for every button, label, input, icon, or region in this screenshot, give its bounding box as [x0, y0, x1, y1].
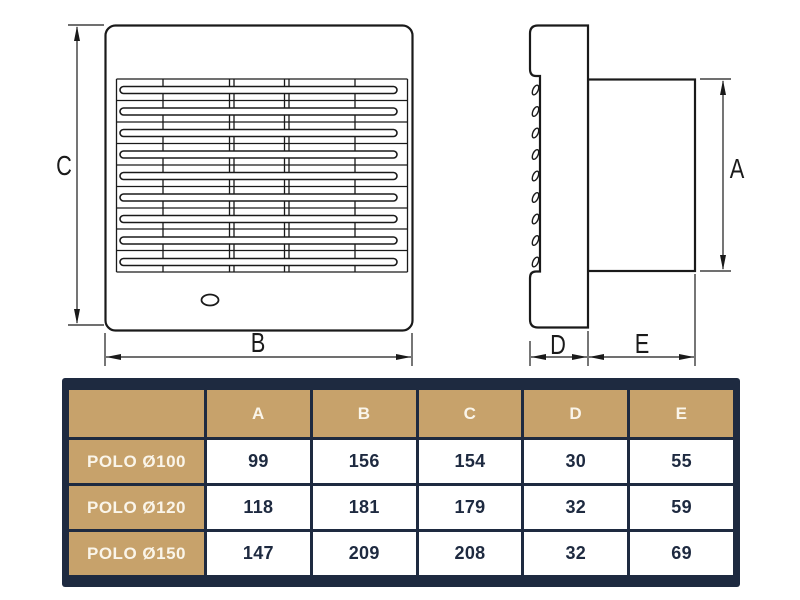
- table-cell: 30: [524, 440, 627, 483]
- column-header-b: B: [313, 390, 416, 437]
- row-header-polo150: POLO Ø150: [69, 532, 204, 575]
- dimension-label-b: B: [251, 327, 266, 358]
- table-cell: 69: [630, 532, 733, 575]
- table-corner-cell: [69, 390, 204, 437]
- table-cell: 99: [207, 440, 310, 483]
- table-cell: 154: [419, 440, 522, 483]
- louver-hooks: [531, 84, 540, 268]
- row-header-polo120: POLO Ø120: [69, 486, 204, 529]
- front-view: [106, 26, 413, 331]
- table-cell: 32: [524, 486, 627, 529]
- table-cell: 32: [524, 532, 627, 575]
- column-header-c: C: [419, 390, 522, 437]
- table-cell: 208: [419, 532, 522, 575]
- table-cell: 156: [313, 440, 416, 483]
- row-header-polo100: POLO Ø100: [69, 440, 204, 483]
- side-view: [530, 26, 695, 328]
- table-cell: 209: [313, 532, 416, 575]
- dimension-label-a: A: [730, 153, 745, 184]
- grille-slats: [120, 87, 397, 266]
- dimension-label-c: C: [56, 150, 72, 181]
- column-header-d: D: [524, 390, 627, 437]
- dimension-label-e: E: [635, 328, 650, 359]
- table-cell: 59: [630, 486, 733, 529]
- column-header-a: A: [207, 390, 310, 437]
- dimension-table: A B C D E POLO Ø100 99 156 154 30 55 POL…: [62, 378, 740, 587]
- table-cell: 181: [313, 486, 416, 529]
- table-cell: 118: [207, 486, 310, 529]
- column-header-e: E: [630, 390, 733, 437]
- table-cell: 179: [419, 486, 522, 529]
- duct: [588, 80, 695, 272]
- technical-drawing: C B A D E: [0, 0, 800, 378]
- table-cell: 55: [630, 440, 733, 483]
- page: C B A D E A B C D E POLO Ø100 99 156 154…: [0, 0, 800, 600]
- table-cell: 147: [207, 532, 310, 575]
- dimension-label-d: D: [550, 329, 566, 360]
